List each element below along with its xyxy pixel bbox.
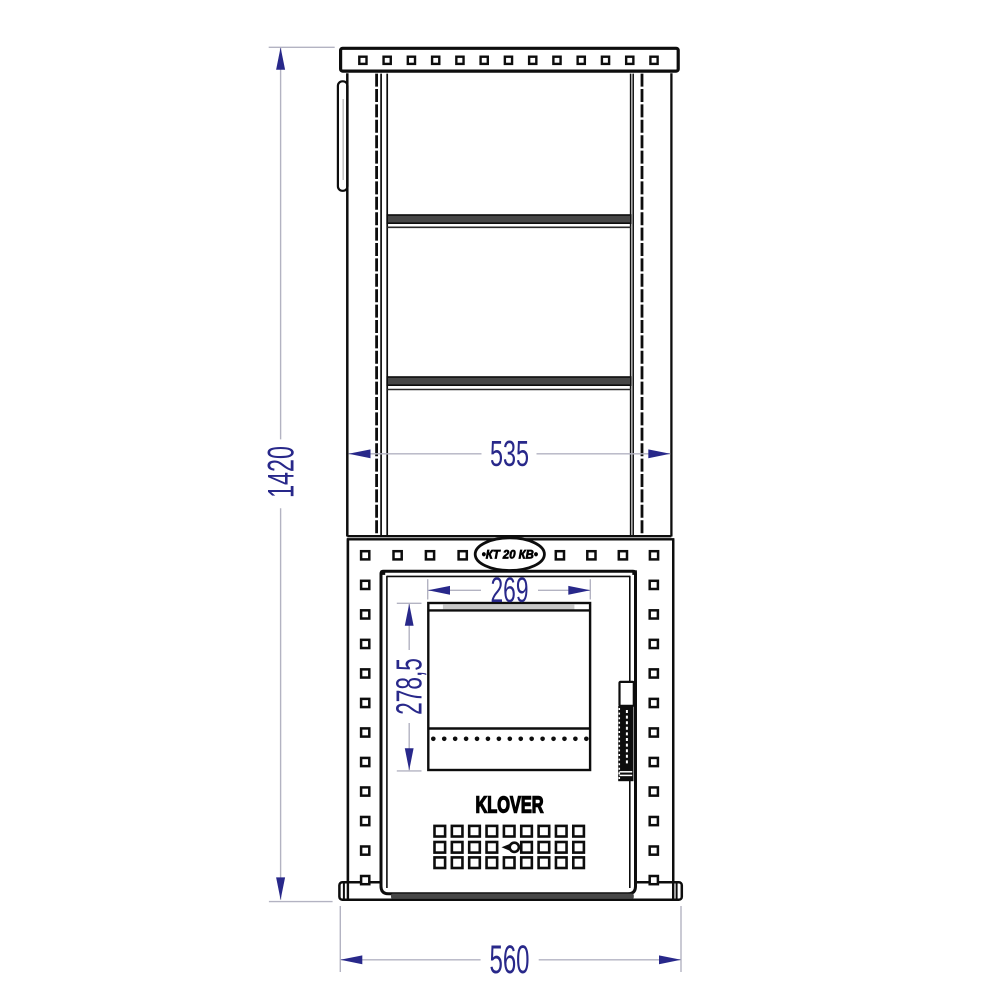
svg-text:269: 269 [491,571,529,610]
svg-text:278,5: 278,5 [390,658,429,715]
svg-text:560: 560 [489,937,529,982]
svg-text:KLOVER: KLOVER [476,791,544,817]
svg-text:1420: 1420 [260,446,302,498]
svg-text:•КТ 20 КВ•: •КТ 20 КВ• [482,550,538,562]
svg-text:535: 535 [490,435,529,474]
